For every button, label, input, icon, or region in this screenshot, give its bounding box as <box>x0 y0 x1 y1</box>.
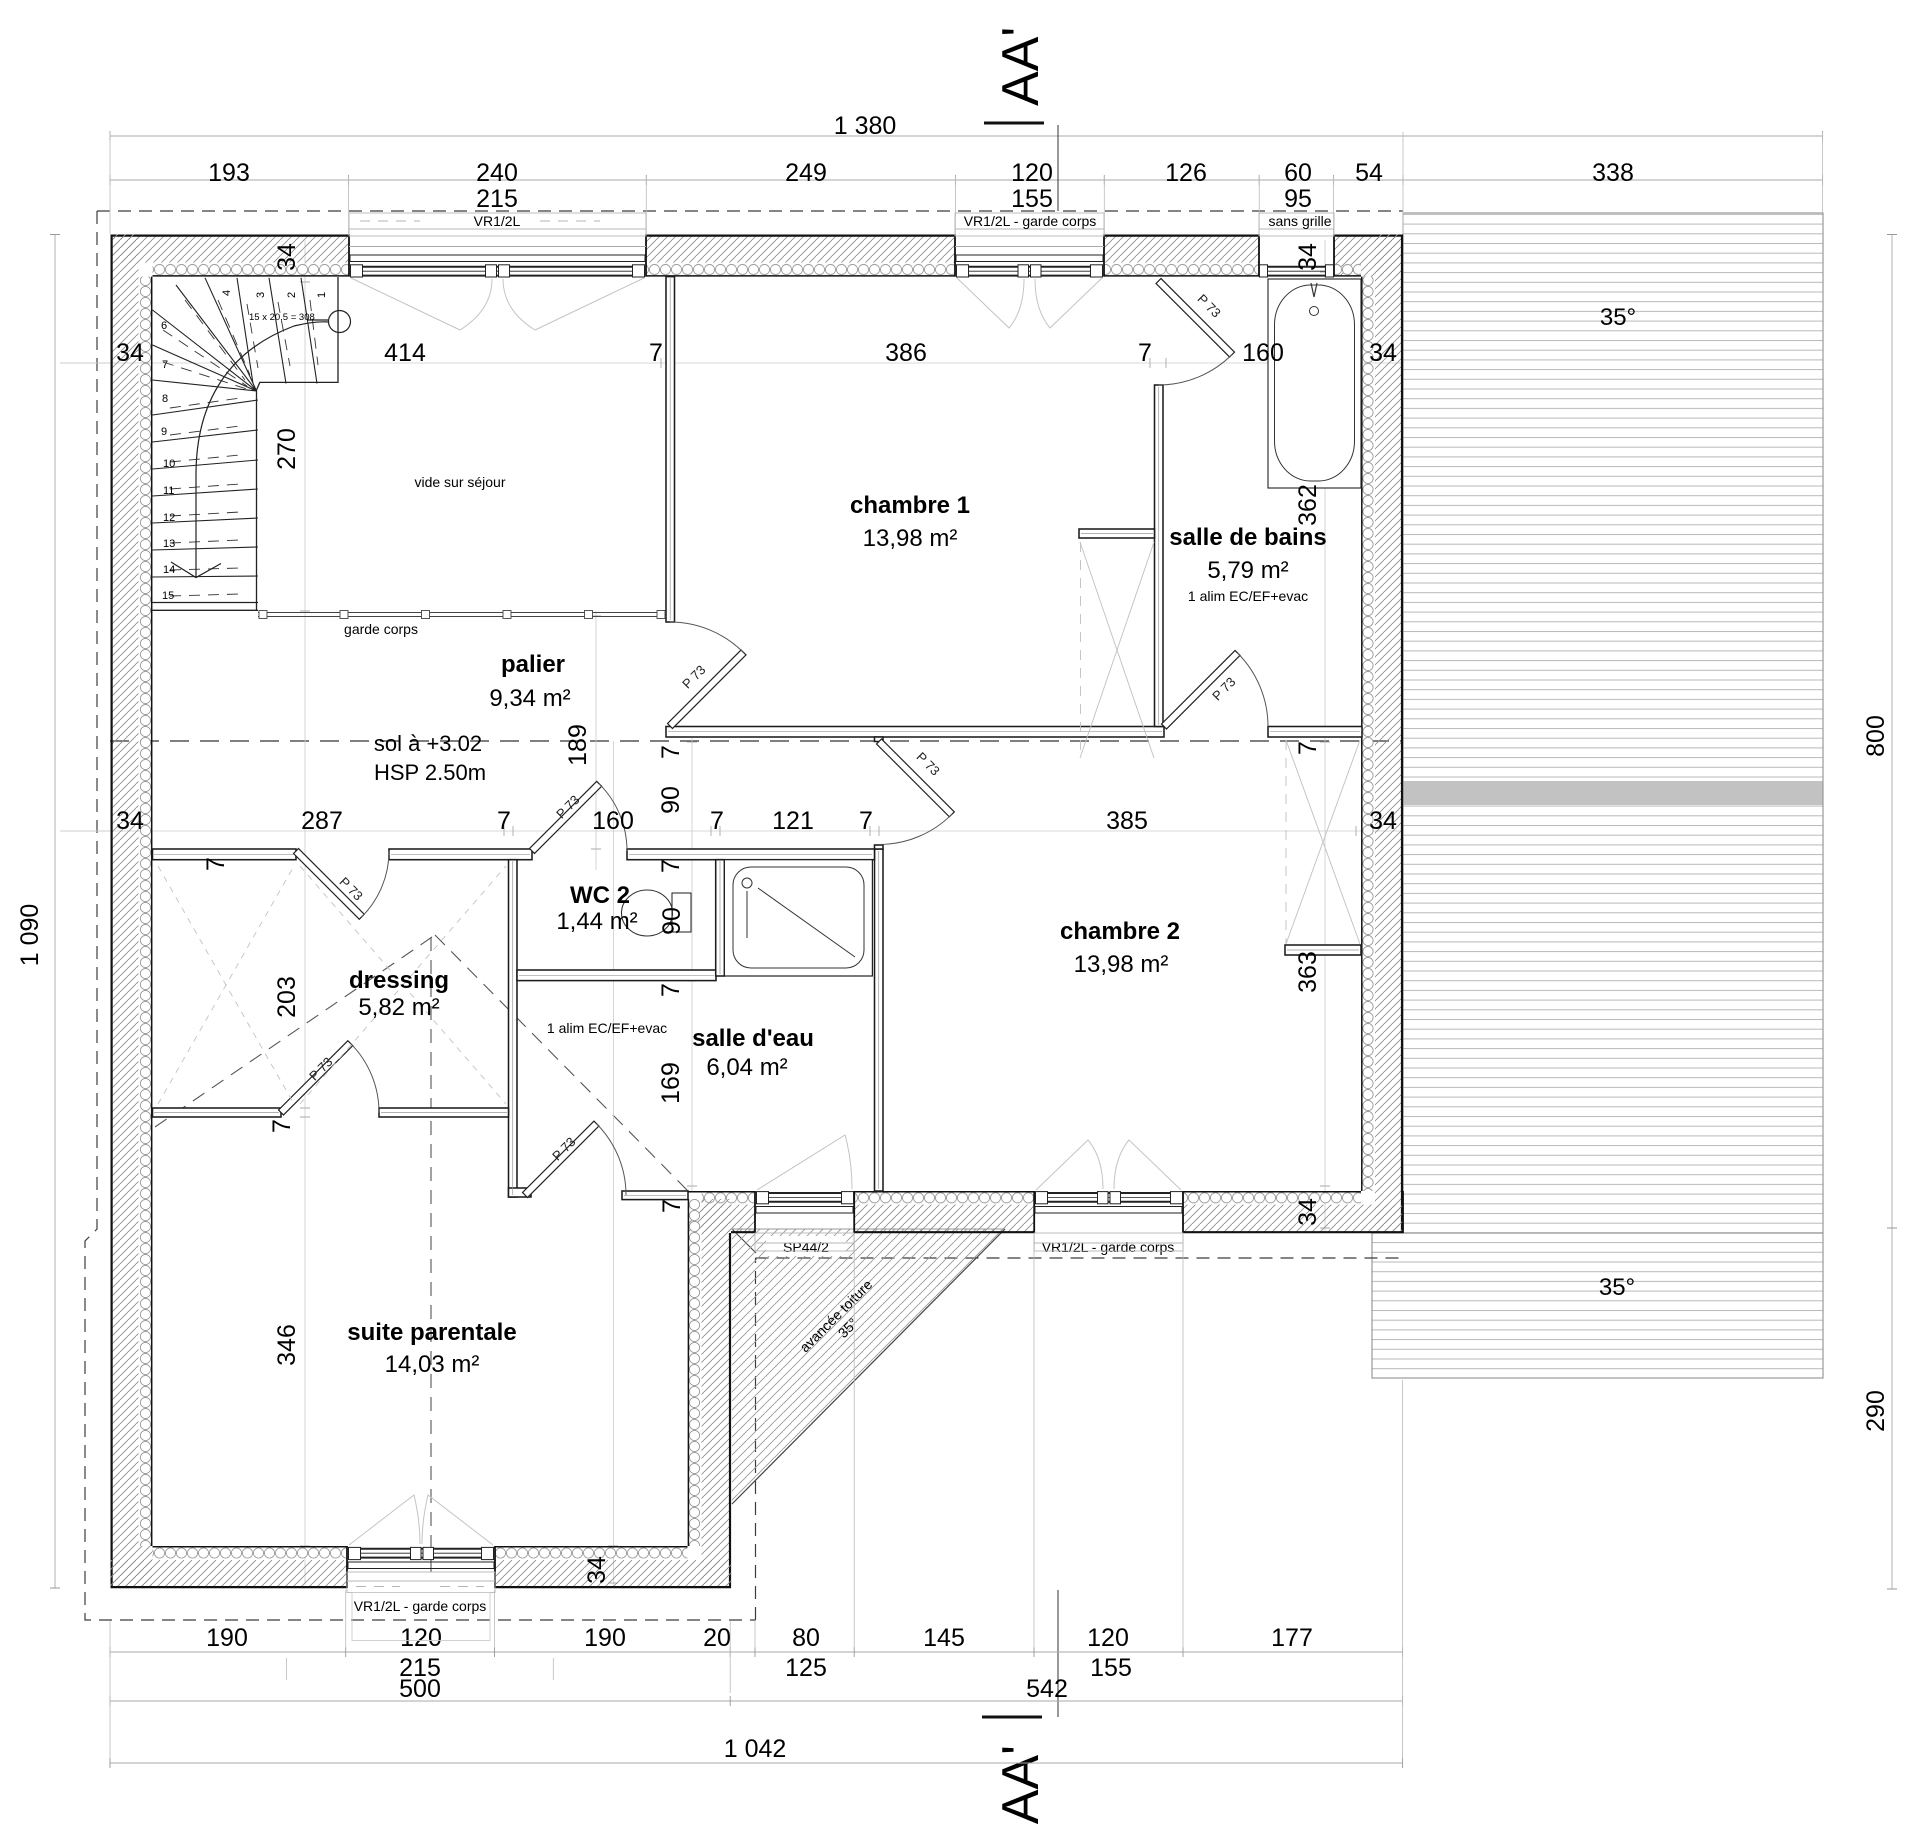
svg-text:7: 7 <box>497 807 511 835</box>
svg-text:7: 7 <box>1138 339 1152 367</box>
svg-text:34: 34 <box>116 339 144 367</box>
svg-text:240: 240 <box>476 159 518 187</box>
svg-text:14: 14 <box>163 564 175 576</box>
svg-text:20: 20 <box>703 1624 731 1652</box>
svg-text:AA': AA' <box>992 27 1050 106</box>
svg-text:VR1/2L - garde corps: VR1/2L - garde corps <box>354 1598 487 1614</box>
svg-text:126: 126 <box>1165 159 1207 187</box>
svg-text:54: 54 <box>1355 159 1383 187</box>
svg-text:7: 7 <box>658 1199 686 1213</box>
svg-text:190: 190 <box>206 1624 248 1652</box>
svg-text:chambre 1: chambre 1 <box>850 492 970 519</box>
svg-text:290: 290 <box>1862 1390 1890 1432</box>
svg-text:13,98 m²: 13,98 m² <box>1074 951 1169 978</box>
svg-text:7: 7 <box>657 983 685 997</box>
svg-text:7: 7 <box>657 859 685 873</box>
svg-text:1 380: 1 380 <box>834 112 897 140</box>
svg-text:160: 160 <box>592 807 634 835</box>
svg-text:suite parentale: suite parentale <box>347 1319 516 1346</box>
svg-text:1 042: 1 042 <box>724 1735 787 1763</box>
svg-text:385: 385 <box>1106 807 1148 835</box>
svg-text:34: 34 <box>1294 243 1322 271</box>
svg-text:13,98 m²: 13,98 m² <box>863 525 958 552</box>
svg-text:sans grille: sans grille <box>1268 213 1331 229</box>
svg-text:338: 338 <box>1592 159 1634 187</box>
svg-text:7: 7 <box>649 339 663 367</box>
svg-text:9: 9 <box>161 426 167 438</box>
svg-text:249: 249 <box>785 159 827 187</box>
svg-text:14,03 m²: 14,03 m² <box>385 1351 480 1378</box>
svg-text:salle d'eau: salle d'eau <box>692 1025 814 1052</box>
svg-text:34: 34 <box>273 243 301 271</box>
svg-text:414: 414 <box>384 339 426 367</box>
svg-text:160: 160 <box>1242 339 1284 367</box>
svg-text:8: 8 <box>162 393 168 405</box>
svg-text:3: 3 <box>255 292 267 298</box>
svg-text:15 x 20,5 = 308: 15 x 20,5 = 308 <box>249 312 315 323</box>
svg-text:7: 7 <box>657 745 685 759</box>
svg-text:203: 203 <box>273 976 301 1018</box>
svg-text:90: 90 <box>658 907 686 935</box>
svg-text:garde corps: garde corps <box>344 621 418 637</box>
svg-text:dressing: dressing <box>349 967 449 994</box>
svg-text:6: 6 <box>161 320 167 332</box>
svg-text:VR1/2L: VR1/2L <box>474 213 521 229</box>
svg-text:90: 90 <box>657 786 685 814</box>
svg-text:11: 11 <box>163 485 174 497</box>
svg-text:34: 34 <box>1369 807 1397 835</box>
svg-text:5,82 m²: 5,82 m² <box>358 994 439 1021</box>
svg-text:13: 13 <box>163 538 175 550</box>
svg-text:1 090: 1 090 <box>16 904 44 967</box>
svg-text:4: 4 <box>221 290 233 296</box>
svg-text:120: 120 <box>1087 1624 1129 1652</box>
svg-text:VR1/2L - garde corps: VR1/2L - garde corps <box>1042 1239 1175 1255</box>
svg-text:sol à +3.02: sol à +3.02 <box>374 731 482 756</box>
svg-text:1 alim EC/EF+evac: 1 alim EC/EF+evac <box>1188 588 1308 604</box>
svg-text:7: 7 <box>162 359 168 371</box>
svg-text:7: 7 <box>859 807 873 835</box>
svg-text:189: 189 <box>564 724 592 766</box>
svg-text:145: 145 <box>923 1624 965 1652</box>
svg-text:salle de bains: salle de bains <box>1169 524 1326 551</box>
svg-text:15: 15 <box>162 590 174 602</box>
svg-text:2: 2 <box>286 292 298 298</box>
svg-text:1 alim EC/EF+evac: 1 alim EC/EF+evac <box>547 1020 667 1036</box>
svg-text:VR1/2L - garde corps: VR1/2L - garde corps <box>964 213 1097 229</box>
svg-text:AA': AA' <box>992 1745 1050 1824</box>
svg-text:34: 34 <box>583 1556 611 1584</box>
svg-text:193: 193 <box>208 159 250 187</box>
svg-text:80: 80 <box>792 1624 820 1652</box>
svg-text:vide sur séjour: vide sur séjour <box>414 474 505 490</box>
svg-text:34: 34 <box>1369 339 1397 367</box>
svg-text:HSP 2.50m: HSP 2.50m <box>374 760 486 785</box>
svg-text:12: 12 <box>163 512 175 524</box>
svg-text:362: 362 <box>1294 484 1322 526</box>
svg-text:95: 95 <box>1284 185 1312 213</box>
svg-text:1,44 m²: 1,44 m² <box>556 908 637 935</box>
svg-text:120: 120 <box>400 1624 442 1652</box>
svg-text:177: 177 <box>1271 1624 1313 1652</box>
svg-text:35°: 35° <box>1600 304 1636 331</box>
svg-text:60: 60 <box>1284 159 1312 187</box>
svg-text:palier: palier <box>501 651 565 678</box>
svg-text:34: 34 <box>1294 1198 1322 1226</box>
svg-text:7: 7 <box>202 857 230 871</box>
svg-text:7: 7 <box>268 1119 296 1133</box>
svg-text:6,04 m²: 6,04 m² <box>706 1054 787 1081</box>
svg-text:SP44/2: SP44/2 <box>783 1239 829 1255</box>
svg-text:120: 120 <box>1011 159 1053 187</box>
svg-text:363: 363 <box>1294 951 1322 993</box>
svg-text:155: 155 <box>1011 185 1053 213</box>
svg-text:7: 7 <box>710 807 724 835</box>
svg-text:chambre 2: chambre 2 <box>1060 918 1180 945</box>
svg-text:5,79 m²: 5,79 m² <box>1207 557 1288 584</box>
svg-text:34: 34 <box>116 807 144 835</box>
svg-text:287: 287 <box>301 807 343 835</box>
svg-text:1: 1 <box>316 292 328 298</box>
svg-text:169: 169 <box>657 1062 685 1104</box>
svg-text:35°: 35° <box>1599 1274 1635 1301</box>
svg-text:270: 270 <box>273 428 301 470</box>
svg-text:386: 386 <box>885 339 927 367</box>
svg-text:WC 2: WC 2 <box>570 882 630 909</box>
svg-text:9,34 m²: 9,34 m² <box>489 685 570 712</box>
svg-text:500: 500 <box>399 1675 441 1703</box>
svg-text:215: 215 <box>476 185 518 213</box>
svg-text:10: 10 <box>163 458 175 470</box>
svg-text:190: 190 <box>584 1624 626 1652</box>
svg-text:7: 7 <box>1294 741 1322 755</box>
svg-text:125: 125 <box>785 1654 827 1682</box>
svg-text:121: 121 <box>772 807 814 835</box>
svg-text:542: 542 <box>1026 1675 1068 1703</box>
svg-text:800: 800 <box>1862 715 1890 757</box>
svg-text:155: 155 <box>1090 1654 1132 1682</box>
svg-text:346: 346 <box>273 1324 301 1366</box>
